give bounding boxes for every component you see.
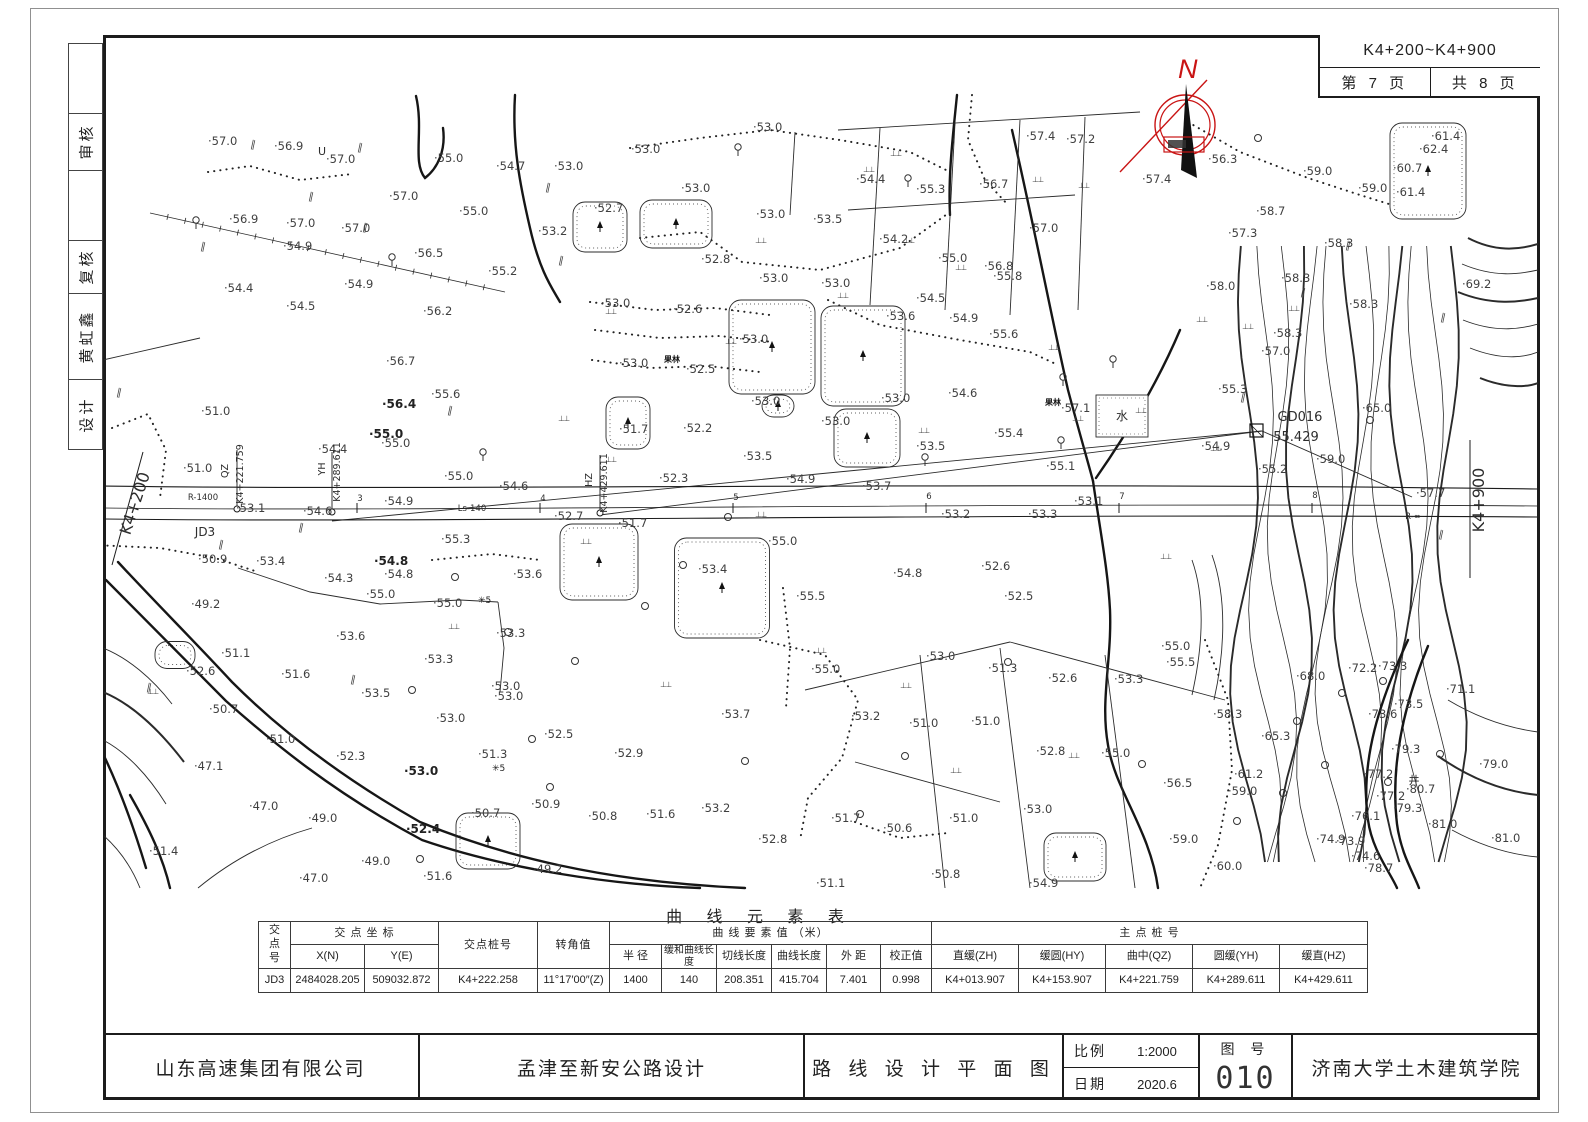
tree-symbol-icon xyxy=(1058,437,1064,443)
elevation-label: ·55.1 xyxy=(1046,459,1075,473)
elevation-label: ·58.0 xyxy=(1206,279,1235,293)
footpath-dotted xyxy=(432,554,540,560)
elevation-label: ·54.8 xyxy=(374,554,408,568)
contour-line xyxy=(1419,246,1452,862)
elevation-label: ·57.0 xyxy=(286,216,315,230)
station-flag-mark xyxy=(1168,140,1186,148)
contour-line xyxy=(1192,560,1201,695)
stream-line xyxy=(416,96,444,178)
tree-icon xyxy=(864,432,870,439)
elevation-label: ·51.7 xyxy=(618,516,647,530)
elevation-label: ·53.0 xyxy=(821,414,850,428)
elevation-label: ·49.0 xyxy=(361,854,390,868)
elevation-label: ·54.9 xyxy=(384,494,413,508)
tree-icon xyxy=(597,221,603,228)
elevation-label: ·52.6 xyxy=(186,664,215,678)
map-annotation: K4+200 xyxy=(116,470,154,537)
elevation-label: ·55.3 xyxy=(441,532,470,546)
lone-tree-icon xyxy=(409,687,416,694)
elevation-label: ·53.6 xyxy=(886,309,915,323)
grass-icon: ⊥⊥ xyxy=(900,681,912,690)
scale-value: 1:2000 xyxy=(1116,1044,1198,1059)
col-header-radius: 半 径 xyxy=(610,945,662,969)
elevation-label: ·52.6 xyxy=(673,302,702,316)
map-annotation: 水 xyxy=(1116,409,1128,423)
field-boundary-line xyxy=(790,132,795,215)
elevation-label: ·51.7 xyxy=(831,811,860,825)
elevation-label: ·54.6 xyxy=(499,479,528,493)
tree-icon xyxy=(596,556,602,563)
elevation-label: ·55.2 xyxy=(488,264,517,278)
field-boundary-line xyxy=(848,195,1075,210)
paddy-field-icon: ∥ xyxy=(1437,529,1444,541)
elevation-label: ·51.0 xyxy=(266,732,295,746)
elevation-label: ·53.4 xyxy=(256,554,285,568)
elevation-label: ·53.7 xyxy=(862,479,891,493)
cell-x: 2484028.205 xyxy=(291,969,365,993)
field-boundary-line xyxy=(855,762,1000,802)
footpath-dotted xyxy=(760,640,858,840)
elevation-label: ·55.4 xyxy=(994,426,1023,440)
figure-number-label: 图 号 xyxy=(1221,1039,1271,1059)
grass-icon: ⊥⊥ xyxy=(147,687,159,696)
map-annotation: 3 xyxy=(357,494,362,504)
north-arrow: N xyxy=(1120,54,1215,178)
cell-tangent: 208.351 xyxy=(717,969,772,993)
tree-icon xyxy=(1072,851,1078,858)
elevation-label: ·53.0 xyxy=(631,142,660,156)
elevation-label: ·49.0 xyxy=(308,811,337,825)
elevation-label: ·55.0 xyxy=(433,596,462,610)
elevation-label: ·57.0 xyxy=(389,189,418,203)
map-annotation: GD016 xyxy=(1278,410,1323,425)
elevation-label: ·54.9 xyxy=(344,277,373,291)
elevation-label: ·79.0 xyxy=(1479,757,1508,771)
cell-station: K4+222.258 xyxy=(439,969,538,993)
elevation-label: ·50.7 xyxy=(471,806,500,820)
figure-number-box: 图 号 010 xyxy=(1200,1035,1293,1100)
lone-tree-icon xyxy=(642,603,649,610)
table-row: JD3 2484028.205 509032.872 K4+222.258 11… xyxy=(259,969,1368,993)
tree-icon xyxy=(485,835,491,842)
elevation-label: ·51.6 xyxy=(646,807,675,821)
elevation-label: ·52.8 xyxy=(701,252,730,266)
elevation-label: ·51.0 xyxy=(183,461,212,475)
elevation-label: ·53.4 xyxy=(698,562,727,576)
col-header-angle: 转角值 xyxy=(538,922,610,969)
col-header-zh: 直缓(ZH) xyxy=(932,945,1019,969)
map-annotation: 5 xyxy=(733,493,738,503)
map-annotation: 8 xyxy=(1312,491,1317,501)
elevation-label: ·52.3 xyxy=(336,749,365,763)
elevation-label: ·57.0 xyxy=(1029,221,1058,235)
elevation-label: ·53.0 xyxy=(436,711,465,725)
field-boundary-line xyxy=(945,123,955,310)
elevation-label: ·51.3 xyxy=(988,661,1017,675)
map-annotation: R-∞ xyxy=(1405,512,1421,522)
tree-icon xyxy=(673,218,679,225)
lone-tree-icon xyxy=(1380,678,1387,685)
map-annotation: 井 xyxy=(1409,773,1420,787)
elevation-label: ·54.4 xyxy=(224,281,253,295)
col-header-coords: 交 点 坐 标 xyxy=(291,922,439,945)
elevation-label: ·54.7 xyxy=(496,159,525,173)
elevation-label: ·61.4 xyxy=(1396,185,1425,199)
field-boundary-line xyxy=(103,338,200,360)
elevation-label: ·61.4 xyxy=(1431,129,1460,143)
col-header-external: 外 距 xyxy=(827,945,881,969)
contour-line xyxy=(1315,246,1350,862)
elevation-label: ·78.7 xyxy=(1364,861,1393,875)
col-header-qz: 曲中(QZ) xyxy=(1106,945,1193,969)
drawing-title: 路 线 设 计 平 面 图 xyxy=(805,1035,1064,1100)
contour-line xyxy=(1463,320,1538,329)
tree-symbol-icon xyxy=(922,454,928,460)
elevation-label: ·52.8 xyxy=(758,832,787,846)
map-annotation: U xyxy=(318,145,326,158)
elevation-label: ·72.2 xyxy=(1348,661,1377,675)
institute-name: 济南大学土木建筑学院 xyxy=(1293,1035,1540,1100)
lone-tree-icon xyxy=(572,658,579,665)
elevation-label: ·53.3 xyxy=(1114,672,1143,686)
map-annotation: 4 xyxy=(540,494,545,504)
field-boundary-line xyxy=(838,112,1140,130)
lone-tree-icon xyxy=(742,758,749,765)
tree-symbol-icon xyxy=(905,175,911,181)
grass-icon: ⊥⊥ xyxy=(755,236,767,245)
curve-element-table: 交点号 交 点 坐 标 交点桩号 转角值 曲 线 要 素 值 （米） 主 点 桩… xyxy=(258,921,1368,993)
elevation-label: ·50.9 xyxy=(531,797,560,811)
map-annotation: QZ xyxy=(220,464,231,478)
elevation-label: ·56.3 xyxy=(1208,152,1237,166)
col-header-jd: 交点号 xyxy=(259,922,291,969)
elevation-label: ·71.1 xyxy=(1446,682,1475,696)
cell-yh: K4+289.611 xyxy=(1193,969,1280,993)
lone-tree-icon xyxy=(1139,761,1146,768)
elevation-label: ·51.0 xyxy=(971,714,1000,728)
tree-icon xyxy=(860,350,866,357)
cell-y: 509032.872 xyxy=(365,969,439,993)
elevation-label: ·53.5 xyxy=(916,439,945,453)
map-annotation: 果林 xyxy=(1044,397,1061,407)
elevation-label: ·49.2 xyxy=(191,597,220,611)
elevation-label: ·51.0 xyxy=(909,716,938,730)
figure-number-value: 010 xyxy=(1215,1061,1275,1096)
paddy-field-icon: ∥ xyxy=(349,674,356,686)
title-block: 山东高速集团有限公司 孟津至新安公路设计 路 线 设 计 平 面 图 比例 1:… xyxy=(103,1033,1540,1100)
cell-external: 7.401 xyxy=(827,969,881,993)
field-boundary-line xyxy=(1010,642,1225,700)
col-header-station: 交点桩号 xyxy=(439,922,538,969)
paddy-field-icon: ∥ xyxy=(217,539,224,551)
footpath-dotted xyxy=(630,130,950,172)
elevation-label: ·50.8 xyxy=(588,809,617,823)
lone-tree-icon xyxy=(1234,818,1241,825)
elevation-label: ·53.0 xyxy=(926,649,955,663)
elevation-label: ·55.5 xyxy=(1166,655,1195,669)
tree-symbol-icon xyxy=(193,217,199,223)
footpath-dotted xyxy=(208,166,352,180)
orchard-icon: ✳5 xyxy=(492,764,505,774)
contour-line xyxy=(1470,348,1538,357)
paddy-field-icon: ∥ xyxy=(307,191,314,203)
elevation-label: ·57.0 xyxy=(208,134,237,148)
grass-icon: ⊥⊥ xyxy=(918,426,930,435)
elevation-label: ·56.8 xyxy=(984,259,1013,273)
elevation-label: ·55.0 xyxy=(459,204,488,218)
elevation-label: ·55.6 xyxy=(989,327,1018,341)
cell-hz: K4+429.611 xyxy=(1280,969,1368,993)
elevation-label: ·55.2 xyxy=(1258,462,1287,476)
elevation-label: ·51.6 xyxy=(423,869,452,883)
date-value: 2020.6 xyxy=(1116,1077,1198,1092)
drawing-sheet: 审核 复核 黄虹鑫 设计 K4+200~K4+900 第 7 页 共 8 页 ∥… xyxy=(0,0,1588,1122)
lone-tree-icon xyxy=(680,562,687,569)
col-header-tangent: 切线长度 xyxy=(717,945,772,969)
paddy-field-icon: ∥ xyxy=(249,139,256,151)
paddy-field-icon: ∥ xyxy=(544,182,551,194)
elevation-label: ·53.0 xyxy=(751,394,780,408)
elevation-label: ·59.0 xyxy=(1169,832,1198,846)
cell-angle: 11°17′00″(Z) xyxy=(538,969,610,993)
elevation-label: ·57.4 xyxy=(1026,129,1055,143)
contour-line xyxy=(103,835,140,888)
contour-line xyxy=(198,828,312,888)
elevation-label: ·47.0 xyxy=(249,799,278,813)
elevation-label: ·52.6 xyxy=(981,559,1010,573)
elevation-label: ·79.3 xyxy=(1393,801,1422,815)
map-annotation: YH xyxy=(317,463,328,477)
tree-icon xyxy=(719,582,725,589)
elevation-label: ·55.0 xyxy=(1101,746,1130,760)
cell-curve: 415.704 xyxy=(772,969,827,993)
field-boundary-line xyxy=(870,128,880,305)
grass-icon: ⊥⊥ xyxy=(558,414,570,423)
north-label: N xyxy=(1178,54,1198,84)
lone-tree-icon xyxy=(529,736,536,743)
elevation-label: ·53.0 xyxy=(404,764,438,778)
elevation-label: ·53.0 xyxy=(756,207,785,221)
date-label: 日期 xyxy=(1064,1074,1116,1094)
map-annotation: Ls-140 xyxy=(458,504,486,514)
col-header-x: X(N) xyxy=(291,945,365,969)
map-annotation: 6 xyxy=(926,492,931,502)
elevation-label: ·55.0 xyxy=(434,151,463,165)
map-annotation: R-1400 xyxy=(188,493,218,503)
col-header-curve: 曲线长度 xyxy=(772,945,827,969)
elevation-label: ·55.0 xyxy=(369,427,403,441)
map-annotation: K4+221.759 xyxy=(235,444,246,504)
elevation-label: ·58.3 xyxy=(1349,297,1378,311)
map-annotation: K4+429.611 xyxy=(599,453,610,513)
elevation-label: ·50.9 xyxy=(198,552,227,566)
footpath-dotted xyxy=(1200,640,1232,888)
field-boundary-line xyxy=(1105,655,1135,888)
elevation-label: ·52.3 xyxy=(659,471,688,485)
elevation-label: ·56.5 xyxy=(414,246,443,260)
elevation-label: ·52.9 xyxy=(614,746,643,760)
map-annotation: 果林 xyxy=(663,354,680,364)
elevation-label: ·54.9 xyxy=(949,311,978,325)
elevation-label: ·53.3 xyxy=(496,626,525,640)
grass-icon: ⊥⊥ xyxy=(1196,315,1208,324)
elevation-label: ·52.5 xyxy=(1004,589,1033,603)
elevation-label: ·49.2 xyxy=(533,862,562,876)
elevation-label: ·56.5 xyxy=(1163,776,1192,790)
paddy-field-icon: ∥ xyxy=(446,405,453,417)
elevation-label: ·55.6 xyxy=(431,387,460,401)
elevation-label: ·56.7 xyxy=(386,354,415,368)
grass-icon: ⊥⊥ xyxy=(815,646,827,655)
lone-tree-icon xyxy=(547,784,554,791)
elevation-label: ·57.0 xyxy=(1261,344,1290,358)
elevation-label: ·58.3 xyxy=(1273,326,1302,340)
lone-tree-icon xyxy=(1255,135,1262,142)
elevation-label: ·60.0 xyxy=(1213,859,1242,873)
elevation-label: ·53.0 xyxy=(753,120,782,134)
elevation-label: ·57.2 xyxy=(1066,132,1095,146)
elevation-label: ·57.3 xyxy=(1228,226,1257,240)
map-annotation: 7 xyxy=(1119,492,1124,502)
elevation-label: ·59.0 xyxy=(1303,164,1332,178)
lone-tree-icon xyxy=(1322,762,1329,769)
elevation-label: ·54.9 xyxy=(1201,439,1230,453)
elevation-label: ·52.7 xyxy=(594,201,623,215)
col-header-yh: 圆缓(YH) xyxy=(1193,945,1280,969)
elevation-label: ·55.5 xyxy=(796,589,825,603)
lone-tree-icon xyxy=(902,753,909,760)
paddy-field-icon: ∥ xyxy=(115,387,122,399)
grass-icon: ⊥⊥ xyxy=(448,622,460,631)
elevation-label: ·53.0 xyxy=(881,391,910,405)
elevation-label: ·54.8 xyxy=(384,567,413,581)
elevation-label: ·51.0 xyxy=(949,811,978,825)
tree-symbol-icon xyxy=(480,449,486,455)
elevation-label: ·76.1 xyxy=(1351,809,1380,823)
elevation-label: ·77.2 xyxy=(1364,767,1393,781)
elevation-label: ·68.0 xyxy=(1296,669,1325,683)
contour-line xyxy=(103,692,184,762)
map-annotation: K4+900 xyxy=(1469,468,1488,533)
grass-icon: ⊥⊥ xyxy=(1160,552,1172,561)
elevation-label: ·56.7 xyxy=(979,177,1008,191)
elevation-label: ·50.8 xyxy=(931,867,960,881)
elevation-label: ·56.9 xyxy=(229,212,258,226)
elevation-label: ·69.2 xyxy=(1462,277,1491,291)
elevation-label: ·53.0 xyxy=(554,159,583,173)
elevation-label: ·53.0 xyxy=(601,296,630,310)
elevation-label: ·51.1 xyxy=(221,646,250,660)
elevation-label: ·53.6 xyxy=(336,629,365,643)
elevation-label: ·81.0 xyxy=(1428,817,1457,831)
elevation-label: ·53.0 xyxy=(491,679,520,693)
company-name: 山东高速集团有限公司 xyxy=(103,1035,420,1100)
grass-icon: ⊥⊥ xyxy=(1032,175,1044,184)
field-boundary-line xyxy=(1000,648,1030,888)
elevation-label: ·58.3 xyxy=(1213,707,1242,721)
elevation-label: ·54.9 xyxy=(786,472,815,486)
elevation-label: ·51.4 xyxy=(149,844,178,858)
col-header-y: Y(E) xyxy=(365,945,439,969)
elevation-label: ·54.5 xyxy=(916,291,945,305)
grass-icon: ⊥⊥ xyxy=(1135,406,1147,415)
col-header-hz: 缓直(HZ) xyxy=(1280,945,1368,969)
elevation-label: ·54.9 xyxy=(1029,876,1058,890)
elevation-label: ·53.5 xyxy=(361,686,390,700)
project-name: 孟津至新安公路设计 xyxy=(420,1035,805,1100)
elevation-label: ·57.7 xyxy=(1416,486,1445,500)
elevation-label: ·56.2 xyxy=(423,304,452,318)
elevation-label: ·52.8 xyxy=(1036,744,1065,758)
elevation-label: ·73.5 xyxy=(1394,697,1423,711)
elevation-label: ·53.6 xyxy=(513,567,542,581)
elevation-label: ·57.1 xyxy=(1061,401,1090,415)
elevation-label: ·50.6 xyxy=(883,821,912,835)
col-header-main-stations: 主 点 桩 号 xyxy=(932,922,1368,945)
elevation-label: ·59.0 xyxy=(1358,181,1387,195)
elevation-label: ·53.0 xyxy=(739,332,768,346)
elevation-label: ·57.4 xyxy=(1142,172,1171,186)
elevation-label: ·53.5 xyxy=(813,212,842,226)
elevation-label: ·53.2 xyxy=(701,801,730,815)
elevation-label: ·73.3 xyxy=(1378,659,1407,673)
elevation-label: ·51.3 xyxy=(478,747,507,761)
elevation-label: ·55.0 xyxy=(811,662,840,676)
grass-icon: ⊥⊥ xyxy=(1242,322,1254,331)
elevation-label: ·55.0 xyxy=(938,251,967,265)
elevation-label: ·53.3 xyxy=(1028,507,1057,521)
elevation-label: ·56.9 xyxy=(274,139,303,153)
contour-line xyxy=(1462,264,1538,274)
map-annotation: HZ xyxy=(584,473,595,487)
contour-line xyxy=(1212,555,1223,700)
footpath-dotted xyxy=(95,545,258,572)
grass-icon: ⊥⊥ xyxy=(1288,304,1300,313)
elevation-label: ·81.0 xyxy=(1491,831,1520,845)
contour-line xyxy=(1480,378,1538,386)
cell-jd: JD3 xyxy=(259,969,291,993)
elevation-label: ·55.0 xyxy=(444,469,473,483)
lone-tree-icon xyxy=(452,574,459,581)
paddy-field-icon: ∥ xyxy=(297,522,304,534)
paddy-field-icon: ∥ xyxy=(199,241,206,253)
elevation-label: ·55.3 xyxy=(1218,382,1247,396)
elevation-label: ·54.5 xyxy=(286,299,315,313)
elevation-label: ·52.4 xyxy=(406,822,440,836)
elevation-label: ·51.0 xyxy=(201,404,230,418)
elevation-label: ·53.1 xyxy=(1074,494,1103,508)
cell-hy: K4+153.907 xyxy=(1019,969,1106,993)
tree-symbol-icon xyxy=(735,144,741,150)
elevation-label: ·53.0 xyxy=(821,276,850,290)
elevation-label: ·53.0 xyxy=(1023,802,1052,816)
cell-correction: 0.998 xyxy=(881,969,932,993)
elevation-label: ·53.2 xyxy=(941,507,970,521)
elevation-label: ·53.2 xyxy=(851,709,880,723)
grass-icon: ⊥⊥ xyxy=(950,766,962,775)
cell-zh: K4+013.907 xyxy=(932,969,1019,993)
elevation-label: ·54.6 xyxy=(303,504,332,518)
elevation-label: ·54.9 xyxy=(283,239,312,253)
lone-tree-icon xyxy=(725,514,732,521)
tree-symbol-icon xyxy=(389,254,395,260)
elevation-label: ·53.2 xyxy=(538,224,567,238)
contour-line xyxy=(1400,246,1435,862)
elevation-label: ·52.2 xyxy=(683,421,712,435)
paddy-field-icon: ∥ xyxy=(1299,287,1306,299)
elevation-label: ·61.2 xyxy=(1234,767,1263,781)
map-annotation: K4+289.611 xyxy=(332,442,343,502)
